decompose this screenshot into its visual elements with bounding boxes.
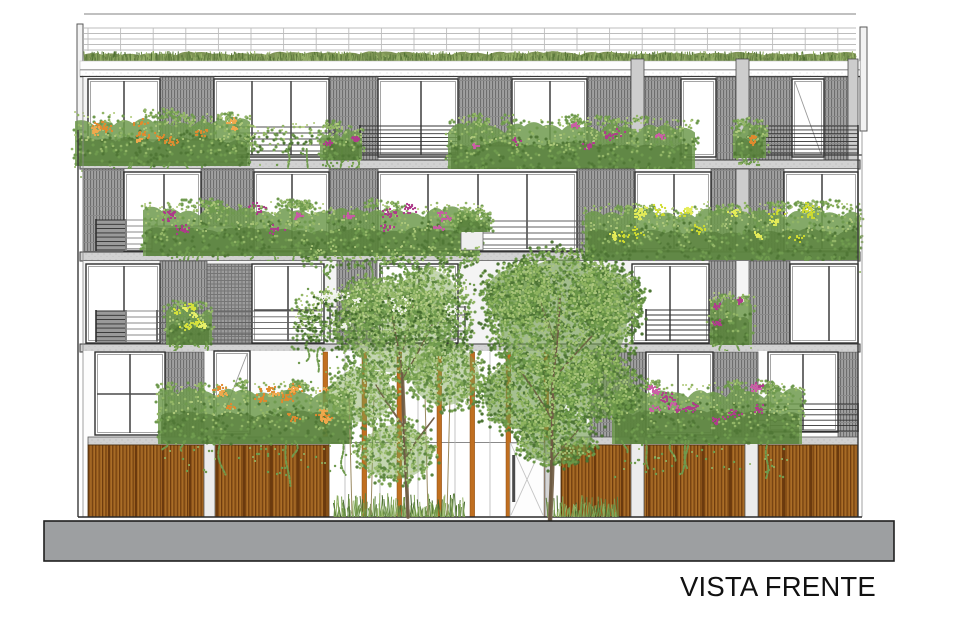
svg-text:VISTA FRENTE: VISTA FRENTE	[680, 571, 876, 602]
